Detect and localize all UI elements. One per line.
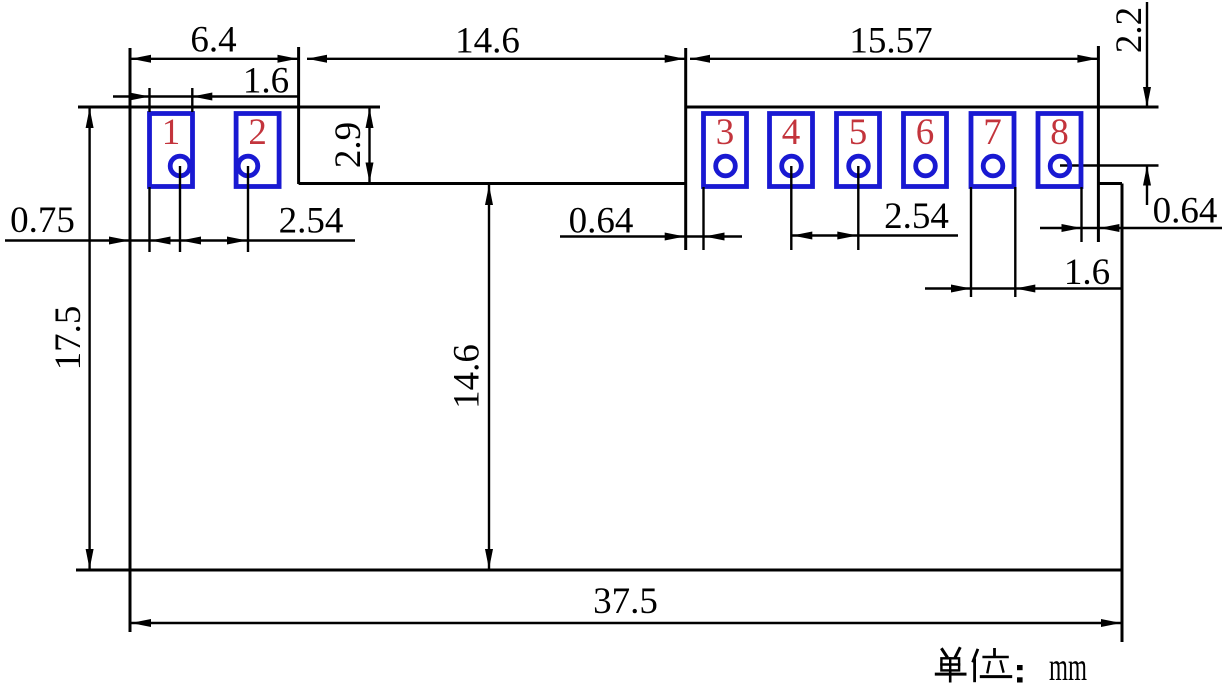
svg-text:1.6: 1.6 bbox=[243, 61, 289, 102]
svg-text:2.54: 2.54 bbox=[279, 201, 344, 242]
svg-text:17.5: 17.5 bbox=[48, 306, 89, 371]
svg-text:8: 8 bbox=[1050, 112, 1069, 153]
svg-text:0.64: 0.64 bbox=[569, 201, 634, 242]
svg-text:14.6: 14.6 bbox=[447, 344, 488, 409]
svg-text:5: 5 bbox=[849, 112, 868, 153]
svg-text:2.54: 2.54 bbox=[884, 196, 949, 237]
svg-text:37.5: 37.5 bbox=[593, 581, 658, 622]
svg-text:2.2: 2.2 bbox=[1109, 7, 1150, 53]
svg-text:1: 1 bbox=[162, 112, 181, 153]
svg-text:mm: mm bbox=[1049, 644, 1087, 689]
svg-text:15.57: 15.57 bbox=[849, 21, 932, 62]
svg-text:3: 3 bbox=[716, 112, 735, 153]
svg-text:4: 4 bbox=[782, 112, 801, 153]
svg-text:2.9: 2.9 bbox=[328, 122, 369, 168]
svg-text:14.6: 14.6 bbox=[455, 21, 520, 62]
svg-text:0.75: 0.75 bbox=[10, 200, 75, 241]
svg-text:0.64: 0.64 bbox=[1153, 191, 1218, 232]
svg-text:1.6: 1.6 bbox=[1064, 252, 1110, 293]
svg-text:6: 6 bbox=[916, 112, 935, 153]
svg-text:6.4: 6.4 bbox=[190, 20, 236, 61]
svg-text:7: 7 bbox=[983, 112, 1002, 153]
svg-text:2: 2 bbox=[248, 112, 267, 153]
